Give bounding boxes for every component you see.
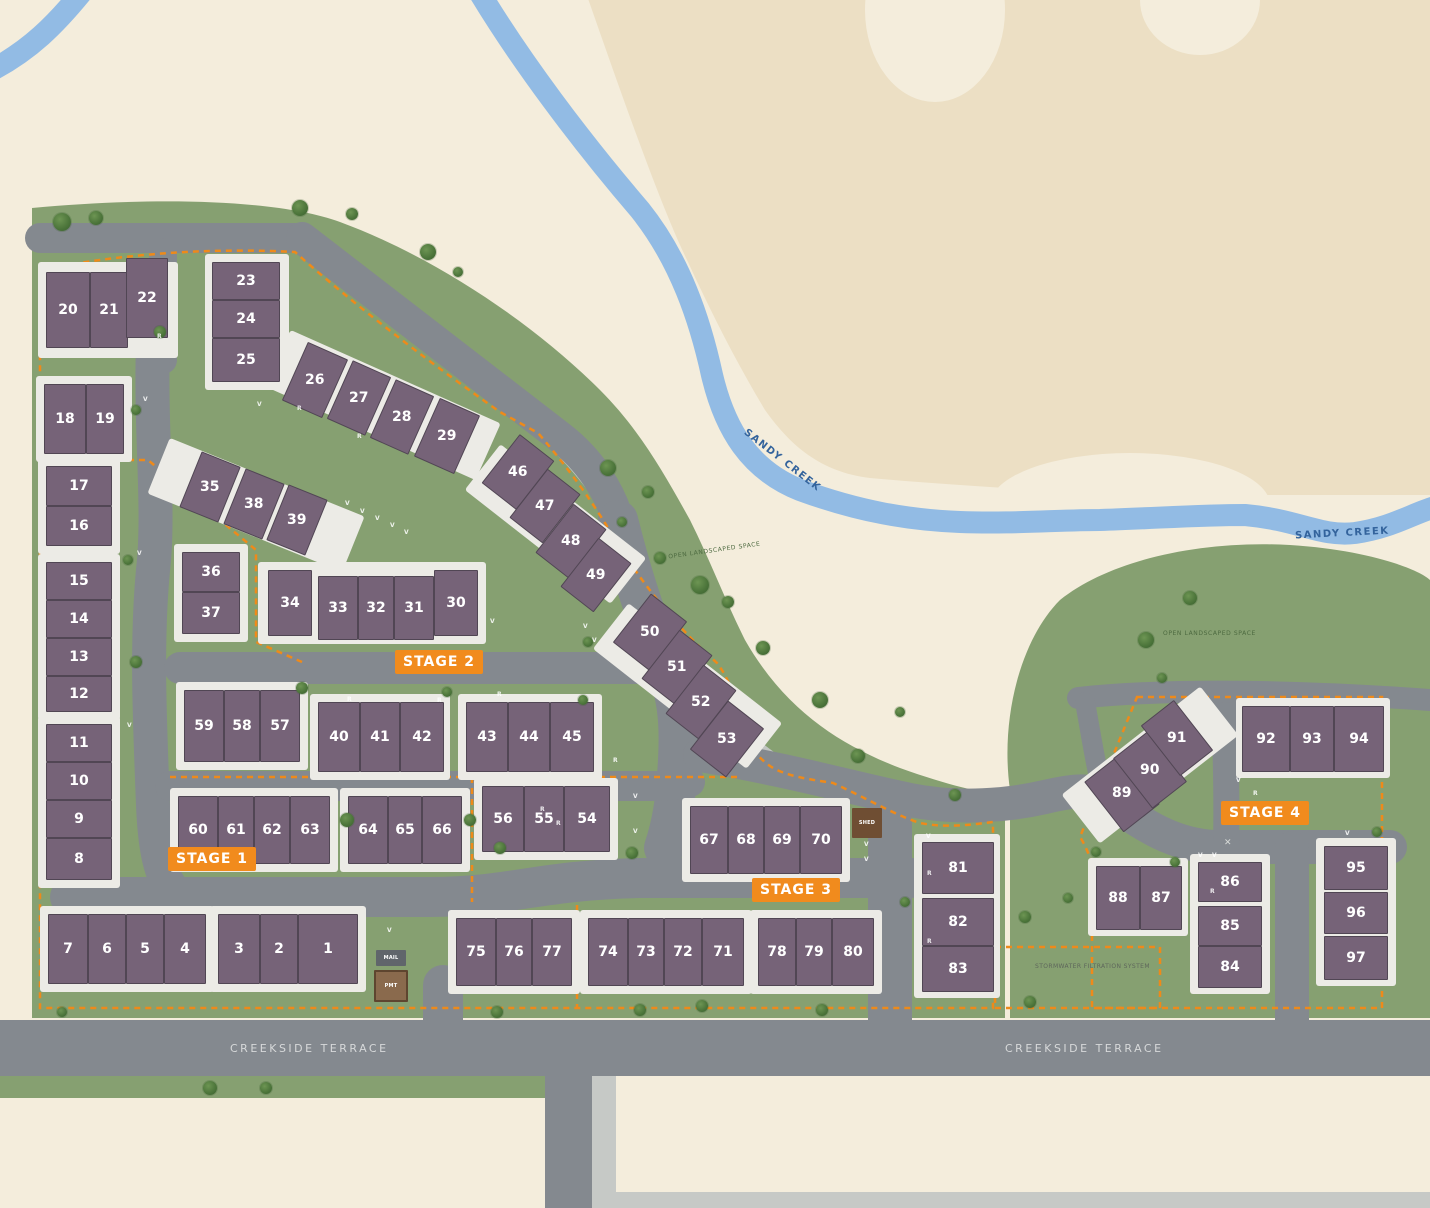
lot-number: 1 <box>323 942 333 956</box>
lot-5: 5 <box>126 914 164 984</box>
parking-marker: V <box>926 833 931 840</box>
lot-74: 74 <box>588 918 628 986</box>
lot-number: 10 <box>69 774 88 788</box>
parking-marker: R <box>613 757 618 764</box>
lot-21: 21 <box>90 272 128 348</box>
lot-number: 69 <box>772 833 791 847</box>
tree-icon <box>691 576 709 594</box>
stage-label-3: STAGE 3 <box>752 878 840 902</box>
lot-number: 9 <box>74 812 84 826</box>
lot-number: 34 <box>280 596 299 610</box>
lot-69: 69 <box>764 806 800 874</box>
tree-icon <box>89 211 103 225</box>
lot-81: 81 <box>922 842 994 894</box>
parking-marker: V <box>345 500 350 507</box>
parking-marker: V <box>864 856 869 863</box>
lot-16: 16 <box>46 506 112 546</box>
parking-marker: V <box>390 522 395 529</box>
lot-number: 14 <box>69 612 88 626</box>
tree-icon <box>1372 827 1382 837</box>
lot-number: 5 <box>140 942 150 956</box>
tree-icon <box>491 1006 503 1018</box>
lot-57: 57 <box>260 690 300 762</box>
lot-66: 66 <box>422 796 462 864</box>
lot-number: 41 <box>370 730 389 744</box>
lot-54: 54 <box>564 786 610 852</box>
tree-icon <box>442 687 452 697</box>
lot-number: 60 <box>188 823 207 837</box>
lot-18: 18 <box>44 384 86 454</box>
lot-63: 63 <box>290 796 330 864</box>
lot-number: 44 <box>519 730 538 744</box>
parking-marker: R <box>497 691 502 698</box>
lot-62: 62 <box>254 796 290 864</box>
lot-12: 12 <box>46 676 112 712</box>
parking-marker: R <box>347 696 352 703</box>
parking-marker: V <box>592 637 597 644</box>
lot-11: 11 <box>46 724 112 762</box>
lot-78: 78 <box>758 918 796 986</box>
lot-number: 46 <box>508 465 527 479</box>
tree-icon <box>900 897 910 907</box>
lot-number: 47 <box>535 499 554 513</box>
lot-number: 88 <box>1108 891 1127 905</box>
lot-87: 87 <box>1140 866 1182 930</box>
parking-marker: V <box>1198 852 1203 859</box>
road <box>545 1068 592 1208</box>
parking-marker: V <box>633 828 638 835</box>
parking-marker: V <box>257 401 262 408</box>
lot-40: 40 <box>318 702 360 772</box>
tree-icon <box>1157 673 1167 683</box>
tree-icon <box>340 813 354 827</box>
lot-number: 82 <box>948 915 967 929</box>
lot-number: 2 <box>274 942 284 956</box>
lot-number: 48 <box>561 534 580 548</box>
lot-number: 91 <box>1167 731 1186 745</box>
lot-8: 8 <box>46 838 112 880</box>
lot-number: 73 <box>636 945 655 959</box>
site-plan-map: 2021222324251819171615141312111098765432… <box>0 0 1430 1208</box>
lot-number: 49 <box>586 568 605 582</box>
lot-number: 92 <box>1256 732 1275 746</box>
mail-label: MAIL <box>384 955 399 961</box>
lot-85: 85 <box>1198 906 1262 946</box>
lot-17: 17 <box>46 466 112 506</box>
lot-92: 92 <box>1242 706 1290 772</box>
tree-icon <box>654 552 666 564</box>
parking-marker: V <box>490 618 495 625</box>
floodplain-tan <box>585 0 1430 495</box>
lot-number: 8 <box>74 852 84 866</box>
lot-number: 36 <box>201 565 220 579</box>
lot-73: 73 <box>628 918 664 986</box>
lot-number: 89 <box>1112 786 1131 800</box>
lot-93: 93 <box>1290 706 1334 772</box>
lot-number: 56 <box>493 812 512 826</box>
tree-icon <box>260 1082 272 1094</box>
lot-number: 55 <box>534 812 553 826</box>
lot-9: 9 <box>46 800 112 838</box>
tree-icon <box>722 596 734 608</box>
lot-number: 32 <box>366 601 385 615</box>
lot-58: 58 <box>224 690 260 762</box>
lot-95: 95 <box>1324 846 1388 890</box>
lot-7: 7 <box>48 914 88 984</box>
lot-number: 58 <box>232 719 251 733</box>
tree-icon <box>346 208 358 220</box>
lot-6: 6 <box>88 914 126 984</box>
lot-13: 13 <box>46 638 112 676</box>
parking-marker: R <box>1210 888 1215 895</box>
lot-number: 39 <box>287 513 306 527</box>
lot-96: 96 <box>1324 892 1388 934</box>
lot-number: 86 <box>1220 875 1239 889</box>
parking-marker: V <box>404 529 409 536</box>
lot-number: 64 <box>358 823 377 837</box>
lot-number: 45 <box>562 730 581 744</box>
tree-icon <box>1063 893 1073 903</box>
lot-15: 15 <box>46 562 112 600</box>
lot-number: 31 <box>404 601 423 615</box>
lot-71: 71 <box>702 918 744 986</box>
lot-80: 80 <box>832 918 874 986</box>
tree-icon <box>57 1007 67 1017</box>
stormwater-label: STORMWATER FILTRATION SYSTEM <box>1035 963 1150 970</box>
lot-number: 66 <box>432 823 451 837</box>
lot-number: 26 <box>305 373 324 387</box>
lot-number: 30 <box>446 596 465 610</box>
lot-65: 65 <box>388 796 422 864</box>
tree-icon <box>420 244 436 260</box>
lot-number: 12 <box>69 687 88 701</box>
lot-70: 70 <box>800 806 842 874</box>
lot-number: 11 <box>69 736 88 750</box>
lot-number: 97 <box>1346 951 1365 965</box>
tree-icon <box>123 555 133 565</box>
stage-label-4: STAGE 4 <box>1221 801 1309 825</box>
parking-marker: V <box>1212 852 1217 859</box>
lot-72: 72 <box>664 918 702 986</box>
lot-number: 28 <box>392 410 411 424</box>
parking-marker: V <box>1236 777 1241 784</box>
lot-number: 83 <box>948 962 967 976</box>
lot-number: 37 <box>201 606 220 620</box>
lot-33: 33 <box>318 576 358 640</box>
tree-icon <box>1183 591 1197 605</box>
footpath <box>592 1076 616 1208</box>
lot-1: 1 <box>298 914 358 984</box>
open-space-label: OPEN LANDSCAPED SPACE <box>1163 630 1256 637</box>
lot-number: 24 <box>236 312 255 326</box>
parking-marker: R <box>1253 790 1258 797</box>
lot-number: 68 <box>736 833 755 847</box>
lot-59: 59 <box>184 690 224 762</box>
lot-84: 84 <box>1198 946 1262 988</box>
tree-icon <box>1170 857 1180 867</box>
lot-24: 24 <box>212 300 280 338</box>
parking-marker: V <box>375 515 380 522</box>
lot-number: 51 <box>667 660 686 674</box>
tree-icon <box>131 405 141 415</box>
lot-31: 31 <box>394 576 434 640</box>
lot-number: 72 <box>673 945 692 959</box>
parking-marker: R <box>927 870 932 877</box>
tree-icon <box>851 749 865 763</box>
lot-number: 53 <box>717 732 736 746</box>
parking-marker: V <box>583 623 588 630</box>
lot-number: 25 <box>236 353 255 367</box>
pmt-structure: PMT <box>374 970 408 1002</box>
lot-64: 64 <box>348 796 388 864</box>
lot-37: 37 <box>182 592 240 634</box>
lot-number: 38 <box>244 497 263 511</box>
lot-number: 21 <box>99 303 118 317</box>
lot-32: 32 <box>358 576 394 640</box>
lot-number: 74 <box>598 945 617 959</box>
footpath <box>592 1192 1430 1208</box>
tree-icon <box>895 707 905 717</box>
lot-number: 79 <box>804 945 823 959</box>
parking-marker: V <box>633 793 638 800</box>
lot-number: 19 <box>95 412 114 426</box>
tree-icon <box>464 814 476 826</box>
parking-marker: V <box>137 550 142 557</box>
parking-marker: V <box>1345 830 1350 837</box>
lot-68: 68 <box>728 806 764 874</box>
lot-number: 23 <box>236 274 255 288</box>
lot-number: 80 <box>843 945 862 959</box>
tree-icon <box>756 641 770 655</box>
tree-icon <box>626 847 638 859</box>
lot-number: 43 <box>477 730 496 744</box>
street-name-label: CREEKSIDE TERRACE <box>230 1042 389 1055</box>
lot-36: 36 <box>182 552 240 592</box>
parking-marker: V <box>143 396 148 403</box>
lot-number: 20 <box>58 303 77 317</box>
parking-marker: R <box>357 433 362 440</box>
lot-number: 65 <box>395 823 414 837</box>
lot-number: 63 <box>300 823 319 837</box>
lot-number: 40 <box>329 730 348 744</box>
lot-number: 87 <box>1151 891 1170 905</box>
tree-icon <box>949 789 961 801</box>
lot-94: 94 <box>1334 706 1384 772</box>
tree-icon <box>1019 911 1031 923</box>
tree-icon <box>494 842 506 854</box>
tree-icon <box>1091 847 1101 857</box>
lot-number: 22 <box>137 291 156 305</box>
tree-icon <box>1024 996 1036 1008</box>
lot-number: 76 <box>504 945 523 959</box>
lot-number: 6 <box>102 942 112 956</box>
tree-icon <box>812 692 828 708</box>
lot-45: 45 <box>550 702 594 772</box>
lot-88: 88 <box>1096 866 1140 930</box>
lot-number: 16 <box>69 519 88 533</box>
lot-number: 15 <box>69 574 88 588</box>
tree-icon <box>600 460 616 476</box>
stage-label-2: STAGE 2 <box>395 650 483 674</box>
lot-83: 83 <box>922 946 994 992</box>
tree-icon <box>696 1000 708 1012</box>
lot-number: 4 <box>180 942 190 956</box>
lot-number: 94 <box>1349 732 1368 746</box>
shed-label: SHED <box>859 820 875 826</box>
lot-55: 55 <box>524 786 564 852</box>
lot-number: 27 <box>349 391 368 405</box>
lot-number: 57 <box>270 719 289 733</box>
lot-44: 44 <box>508 702 550 772</box>
lot-number: 75 <box>466 945 485 959</box>
lot-number: 62 <box>262 823 281 837</box>
lot-number: 13 <box>69 650 88 664</box>
lot-79: 79 <box>796 918 832 986</box>
tree-icon <box>634 1004 646 1016</box>
lot-67: 67 <box>690 806 728 874</box>
parking-marker: R <box>556 820 561 827</box>
tree-icon <box>203 1081 217 1095</box>
lot-number: 59 <box>194 719 213 733</box>
lot-number: 77 <box>542 945 561 959</box>
lot-2: 2 <box>260 914 298 984</box>
lot-43: 43 <box>466 702 508 772</box>
lot-34: 34 <box>268 570 312 636</box>
tree-icon <box>1138 632 1154 648</box>
lot-77: 77 <box>532 918 572 986</box>
lot-number: 71 <box>713 945 732 959</box>
lot-3: 3 <box>218 914 260 984</box>
creekside-terrace-road <box>0 1020 1430 1076</box>
tree-icon <box>642 486 654 498</box>
parking-marker: R <box>297 405 302 412</box>
parking-marker: V <box>864 841 869 848</box>
tree-icon <box>816 1004 828 1016</box>
lot-19: 19 <box>86 384 124 454</box>
lot-number: 93 <box>1302 732 1321 746</box>
street-name-label: CREEKSIDE TERRACE <box>1005 1042 1164 1055</box>
lot-86: 86 <box>1198 862 1262 902</box>
parking-marker: R <box>927 938 932 945</box>
pmt-label: PMT <box>385 983 398 989</box>
lot-30: 30 <box>434 570 478 636</box>
tree-icon <box>130 656 142 668</box>
lot-number: 3 <box>234 942 244 956</box>
lot-number: 67 <box>699 833 718 847</box>
lot-number: 54 <box>577 812 596 826</box>
lot-number: 70 <box>811 833 830 847</box>
lot-number: 42 <box>412 730 431 744</box>
tree-icon <box>617 517 627 527</box>
lot-number: 90 <box>1140 763 1159 777</box>
tree-icon <box>578 695 588 705</box>
parking-marker: V <box>360 508 365 515</box>
lot-14: 14 <box>46 600 112 638</box>
lot-41: 41 <box>360 702 400 772</box>
lot-25: 25 <box>212 338 280 382</box>
lot-76: 76 <box>496 918 532 986</box>
lot-number: 85 <box>1220 919 1239 933</box>
lot-75: 75 <box>456 918 496 986</box>
shed-structure: SHED <box>852 808 882 838</box>
lot-number: 17 <box>69 479 88 493</box>
lot-number: 96 <box>1346 906 1365 920</box>
parking-marker: V <box>387 927 392 934</box>
lot-number: 95 <box>1346 861 1365 875</box>
lot-number: 33 <box>328 601 347 615</box>
lot-number: 50 <box>640 625 659 639</box>
lot-82: 82 <box>922 898 994 946</box>
lot-number: 7 <box>63 942 73 956</box>
playground-icon: ✕ <box>1224 838 1232 848</box>
lot-number: 35 <box>200 480 219 494</box>
lot-number: 81 <box>948 861 967 875</box>
lot-number: 29 <box>437 429 456 443</box>
lot-97: 97 <box>1324 936 1388 980</box>
lot-20: 20 <box>46 272 90 348</box>
tree-icon <box>296 682 308 694</box>
lot-4: 4 <box>164 914 206 984</box>
lot-number: 84 <box>1220 960 1239 974</box>
parking-marker: R <box>540 806 545 813</box>
lot-number: 78 <box>767 945 786 959</box>
tree-icon <box>292 200 308 216</box>
creek <box>0 0 82 70</box>
parking-marker: R <box>157 333 162 340</box>
stage-label-1: STAGE 1 <box>168 847 256 871</box>
lot-number: 52 <box>691 695 710 709</box>
lot-number: 61 <box>226 823 245 837</box>
lot-10: 10 <box>46 762 112 800</box>
lot-23: 23 <box>212 262 280 300</box>
tree-icon <box>53 213 71 231</box>
verge-green <box>0 1076 548 1098</box>
lot-number: 18 <box>55 412 74 426</box>
parking-marker: V <box>127 722 132 729</box>
parking-marker: R <box>437 697 442 704</box>
mail-structure: MAIL <box>376 950 406 966</box>
lot-42: 42 <box>400 702 444 772</box>
tree-icon <box>453 267 463 277</box>
